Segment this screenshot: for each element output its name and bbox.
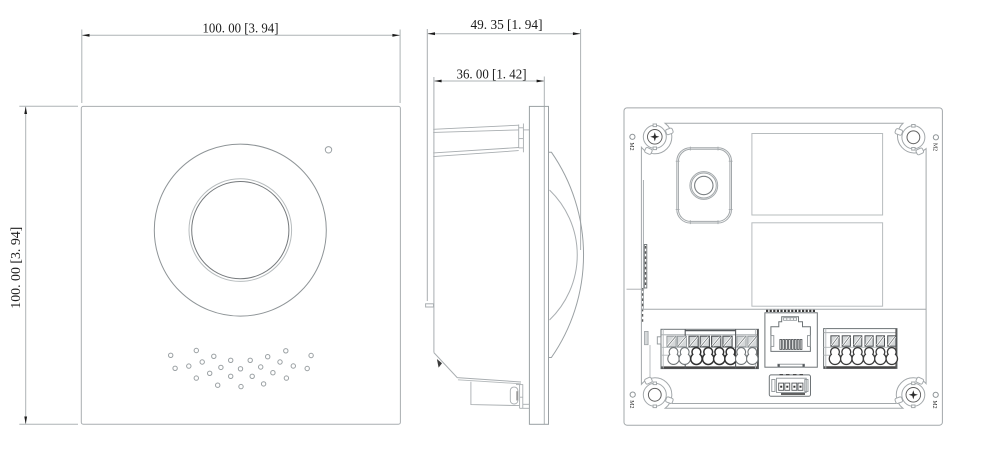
svg-text:36. 00 [1. 42]: 36. 00 [1. 42] [457,67,527,82]
svg-text:M2: M2 [628,143,634,151]
svg-text:M2: M2 [628,400,634,408]
svg-text:100. 00 [3. 94]: 100. 00 [3. 94] [203,20,279,35]
svg-text:49. 35 [1. 94]: 49. 35 [1. 94] [471,17,543,32]
svg-text:M2: M2 [931,143,937,151]
svg-text:100. 00 [3. 94]: 100. 00 [3. 94] [8,227,23,309]
svg-text:M2: M2 [931,401,937,409]
